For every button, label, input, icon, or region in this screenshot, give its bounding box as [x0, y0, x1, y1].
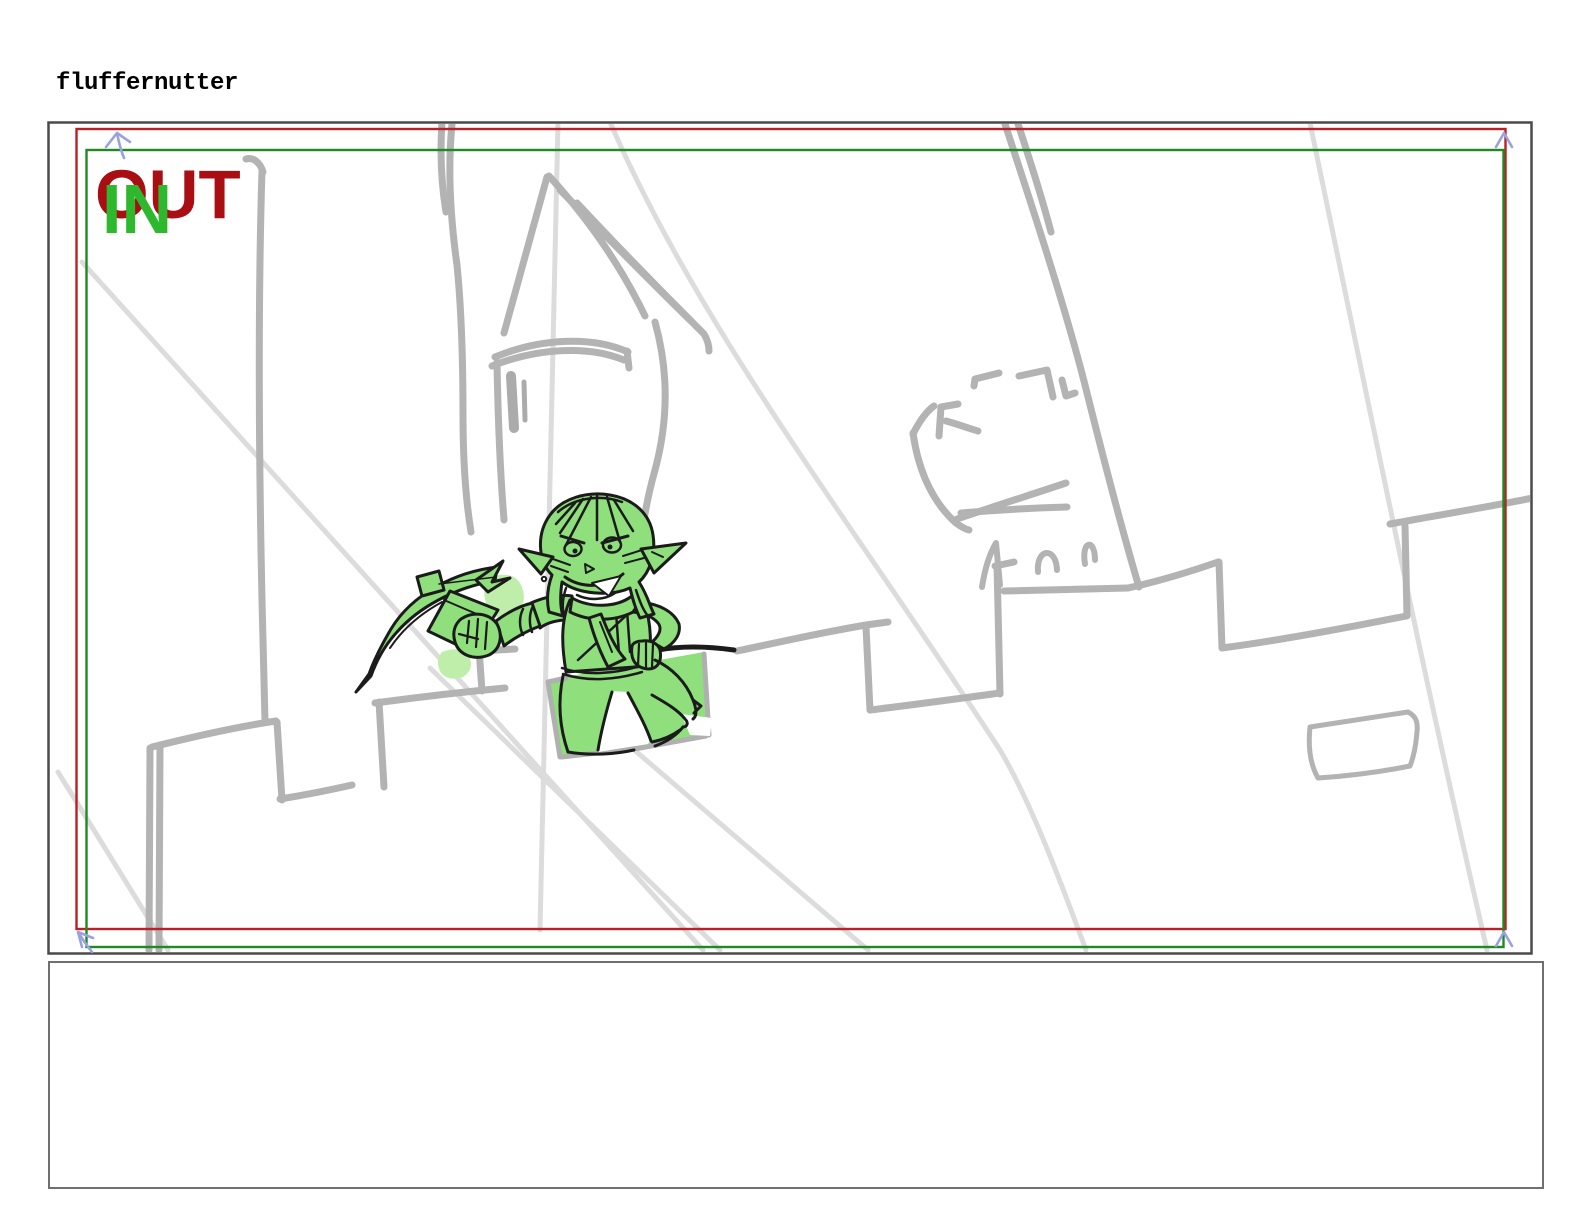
caption-box [48, 961, 1544, 1189]
wall-left-post [149, 748, 150, 950]
panel-border [49, 123, 1532, 954]
storyboard-page: fluffernutter [0, 0, 1582, 1225]
bow-hand [454, 614, 500, 657]
in-frame-label: IN [102, 170, 172, 248]
